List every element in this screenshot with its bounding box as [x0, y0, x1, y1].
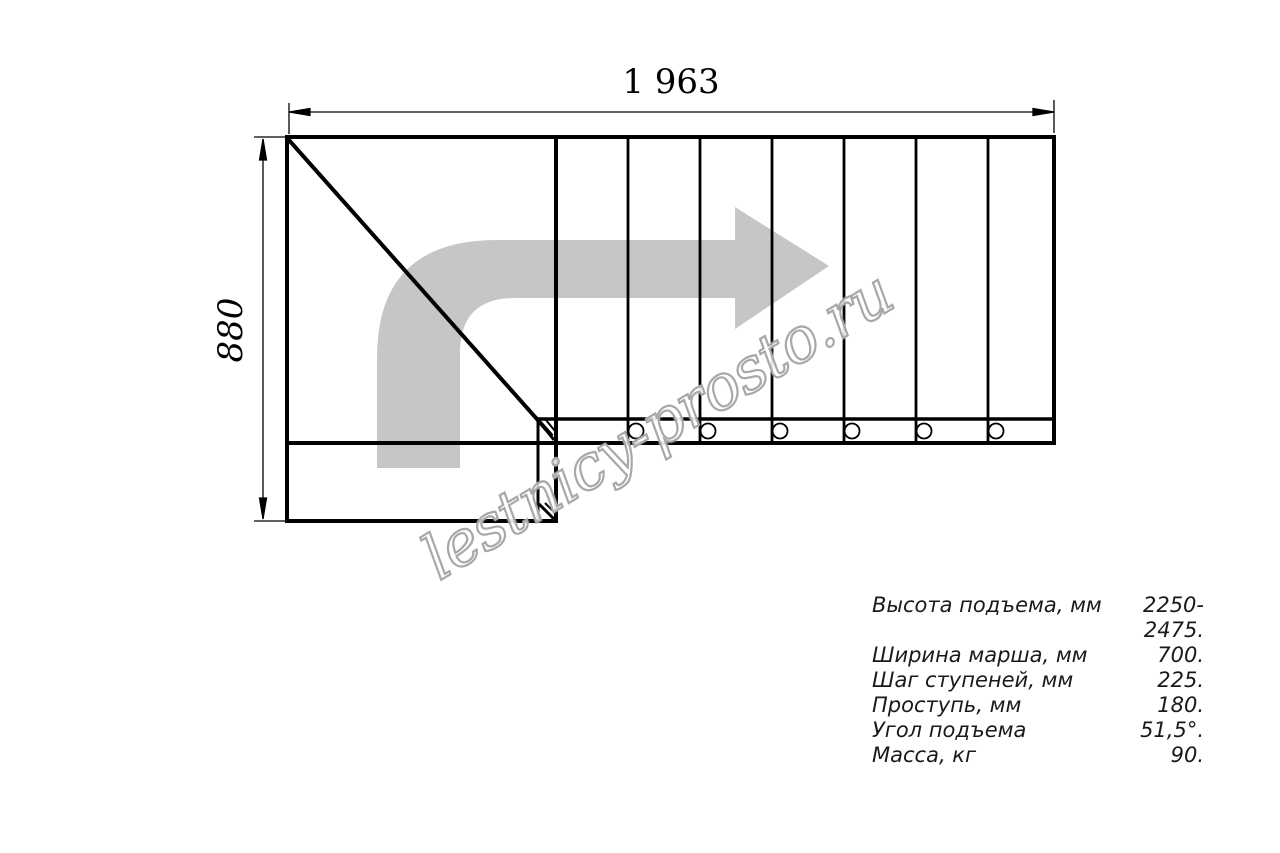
- spec-table: Высота подъема, мм 2250-2475. Ширина мар…: [872, 593, 1204, 768]
- spec-row-height: Высота подъема, мм 2250-2475.: [872, 593, 1204, 643]
- spec-row-tread: Проступь, мм 180.: [872, 693, 1204, 718]
- spec-row-step-pitch: Шаг ступеней, мм 225.: [872, 668, 1204, 693]
- spec-value: 180.: [1021, 693, 1204, 718]
- spec-label: Угол подъема: [872, 718, 1026, 743]
- spec-label: Ширина марша, мм: [872, 643, 1088, 668]
- spec-label: Масса, кг: [872, 743, 976, 768]
- spec-row-angle: Угол подъема 51,5°.: [872, 718, 1204, 743]
- spec-value: 700.: [1088, 643, 1204, 668]
- spec-row-flight-width: Ширина марша, мм 700.: [872, 643, 1204, 668]
- top-dimension-label: 1 963: [571, 62, 771, 102]
- spec-label: Проступь, мм: [872, 693, 1021, 718]
- spec-value: 225.: [1073, 668, 1204, 693]
- top-dimension: [289, 100, 1054, 134]
- spec-value: 2250-2475.: [1102, 593, 1204, 643]
- spec-row-mass: Масса, кг 90.: [872, 743, 1204, 768]
- spec-value: 51,5°.: [1026, 718, 1204, 743]
- stair-plan-page: 1 963 880 lestnicy-prosto.ru Высота подъ…: [0, 0, 1280, 853]
- spec-value: 90.: [976, 743, 1204, 768]
- spec-label: Шаг ступеней, мм: [872, 668, 1073, 693]
- left-dimension: [254, 137, 287, 521]
- newel-post-top: [539, 420, 555, 440]
- spec-label: Высота подъема, мм: [872, 593, 1102, 643]
- left-dimension-label: 880: [211, 230, 251, 430]
